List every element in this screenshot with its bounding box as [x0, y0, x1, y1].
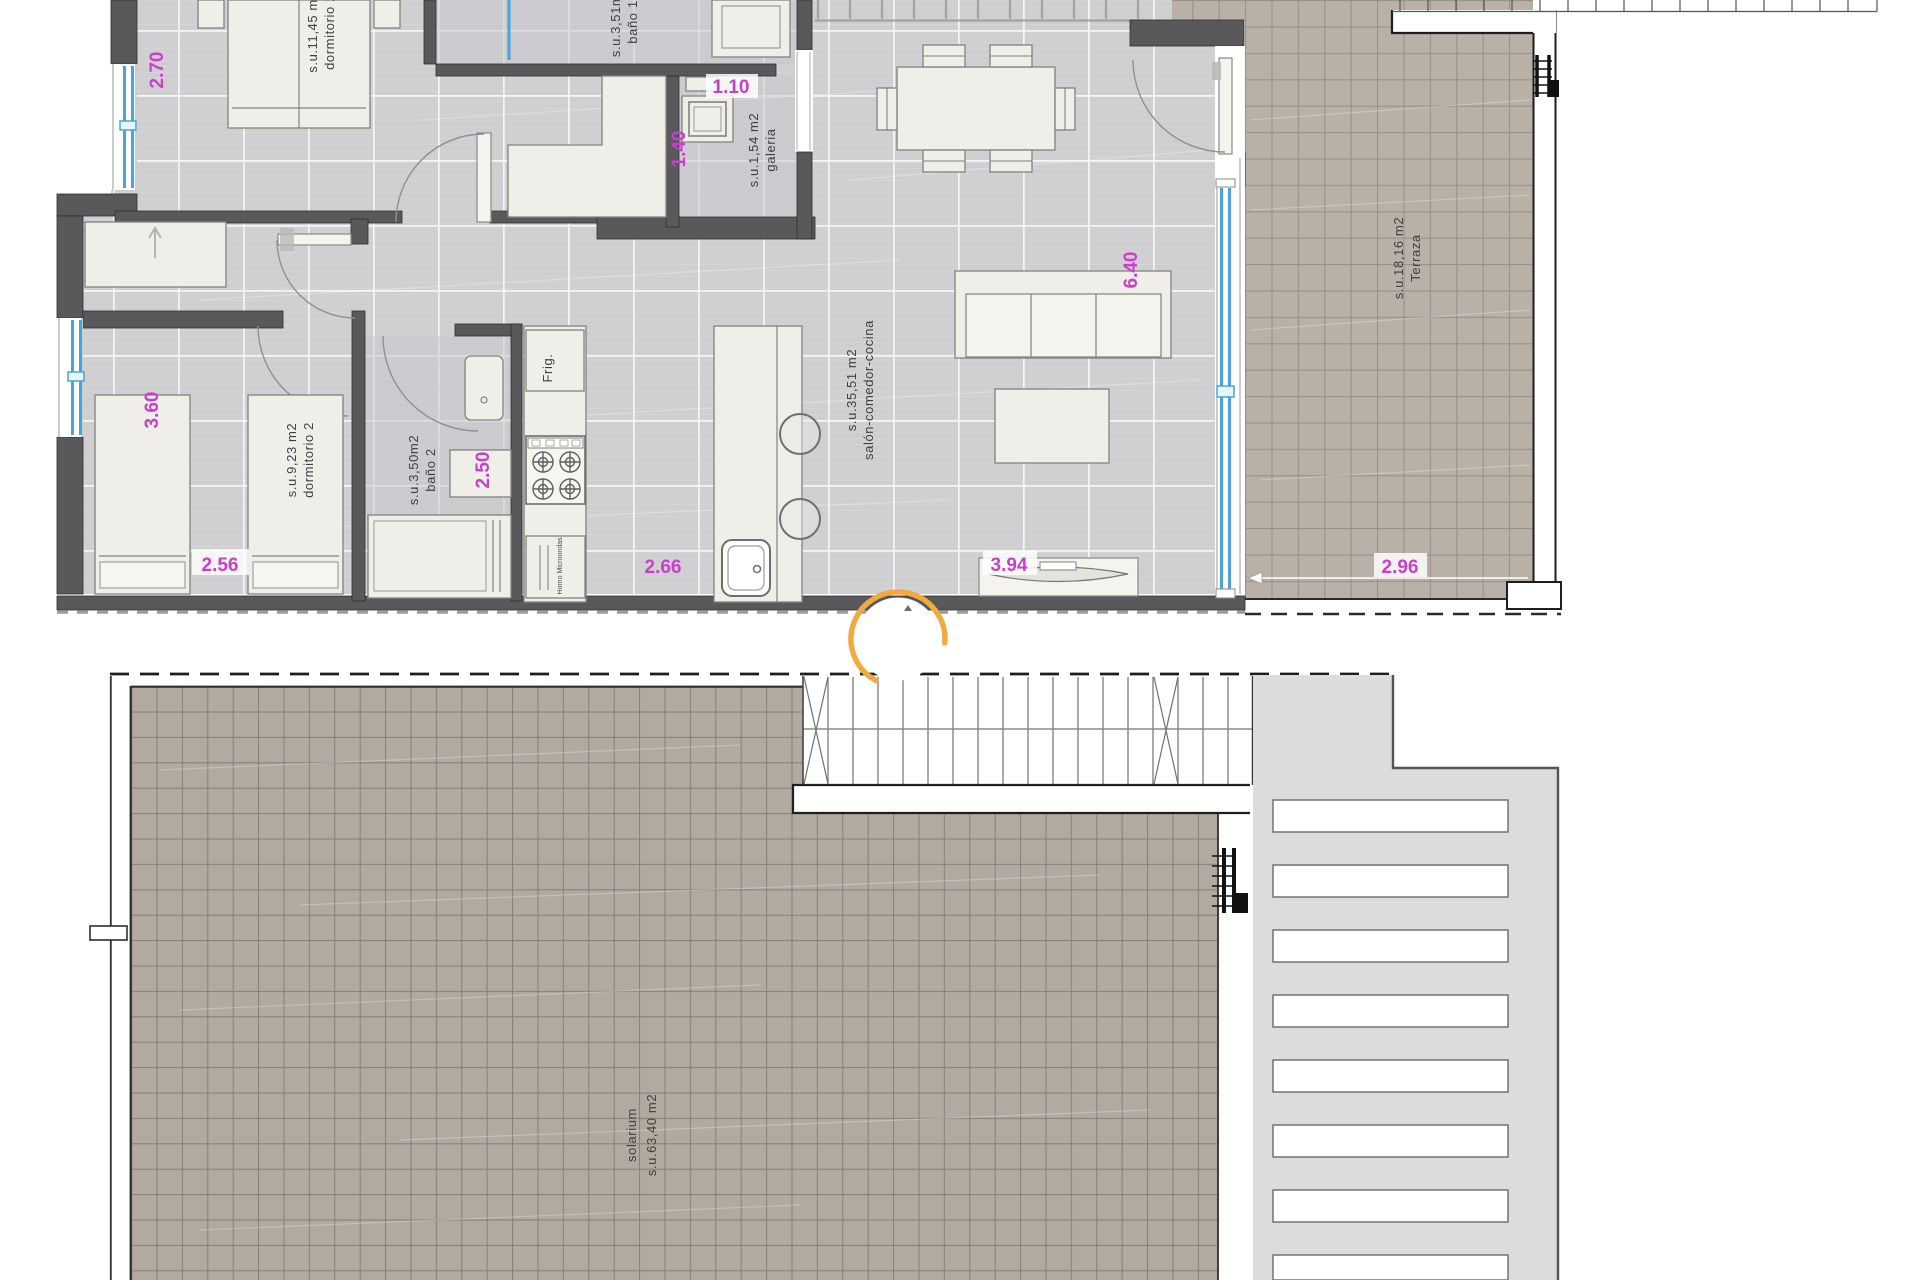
svg-text:3.60: 3.60	[142, 392, 163, 429]
svg-text:dormitorio 1: dormitorio 1	[322, 0, 337, 70]
svg-text:s.u.3,50m2: s.u.3,50m2	[406, 435, 421, 505]
svg-text:Horno Microondas: Horno Microondas	[557, 537, 564, 595]
svg-text:s.u.18,16 m2: s.u.18,16 m2	[1391, 217, 1406, 299]
svg-text:dormitorio 2: dormitorio 2	[301, 422, 316, 498]
svg-text:2.56: 2.56	[202, 555, 239, 576]
svg-text:6.40: 6.40	[1121, 252, 1142, 289]
svg-text:2.66: 2.66	[645, 557, 682, 578]
svg-text:2.96: 2.96	[1382, 557, 1419, 578]
svg-text:s.u.35,51 m2: s.u.35,51 m2	[844, 349, 859, 431]
svg-text:s.u.9,23 m2: s.u.9,23 m2	[284, 423, 299, 498]
svg-text:salón-comedor-cocina: salón-comedor-cocina	[861, 320, 876, 460]
svg-text:2.70: 2.70	[147, 52, 168, 89]
svg-text:Terraza: Terraza	[1408, 234, 1423, 282]
svg-text:solarium: solarium	[624, 1108, 639, 1162]
svg-text:3.94: 3.94	[991, 555, 1028, 576]
svg-text:2.50: 2.50	[473, 452, 494, 489]
svg-text:s.u.63,40 m2: s.u.63,40 m2	[644, 1094, 659, 1176]
svg-text:Frig.: Frig.	[540, 354, 555, 383]
svg-text:baño 1: baño 1	[625, 0, 640, 43]
svg-text:s.u.3,51m2: s.u.3,51m2	[608, 0, 623, 57]
svg-text:1.10: 1.10	[713, 77, 750, 98]
svg-text:s.u.11,45 m2: s.u.11,45 m2	[305, 0, 320, 73]
svg-text:galeria: galeria	[763, 128, 778, 171]
svg-text:1.40: 1.40	[669, 131, 690, 168]
svg-text:s.u.1,54 m2: s.u.1,54 m2	[746, 113, 761, 188]
svg-text:baño 2: baño 2	[423, 448, 438, 491]
